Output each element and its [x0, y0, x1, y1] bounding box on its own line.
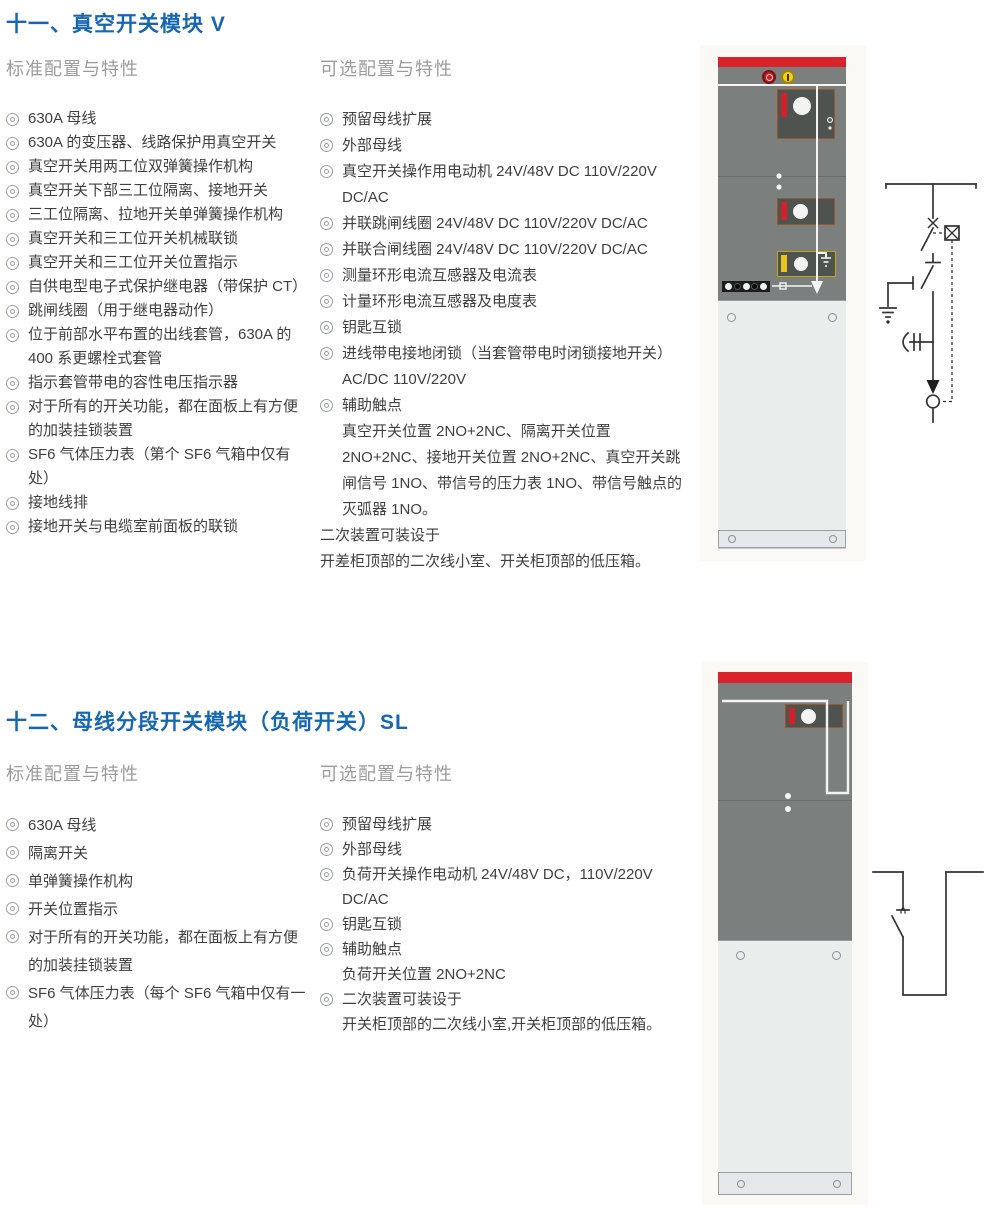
bullet-icon	[6, 209, 19, 222]
bullet-icon	[6, 930, 19, 943]
optional-config-list: 预留母线扩展 外部母线 真空开关操作用电动机 24V/48V DC 110V/2…	[320, 107, 694, 523]
item-text: 预留母线扩展	[342, 107, 694, 133]
item-text: 负荷开关操作电动机 24V/48V DC，110V/220V DC/AC	[342, 862, 698, 912]
bullet-icon	[320, 943, 333, 956]
section-link-line	[903, 872, 946, 995]
item-text: 真空开关和三工位开关机械联锁	[28, 227, 308, 251]
item-text: 630A 母线	[28, 107, 308, 131]
bullet-icon	[320, 139, 333, 152]
page: 十一、真空开关模块 V 标准配置与特性 630A 母线 630A 的变压器、线路…	[0, 0, 996, 1208]
config-item: 接地线排	[6, 491, 308, 515]
mimic-diagram-lines	[718, 57, 846, 549]
bullet-icon	[320, 243, 333, 256]
bullet-icon	[6, 846, 19, 859]
config-item: 630A 母线	[6, 107, 308, 131]
bullet-icon	[320, 843, 333, 856]
protection-relay-box	[945, 226, 959, 240]
standard-heading: 标准配置与特性	[6, 55, 308, 81]
bullet-icon	[320, 113, 333, 126]
item-text: 真空开关和三工位开关位置指示	[28, 251, 308, 275]
item-text: 跳闸线圈（用于继电器动作）	[28, 299, 308, 323]
item-subtext: 负荷开关位置 2NO+2NC	[342, 962, 698, 987]
ct-sensor-circle	[927, 395, 940, 408]
item-text: 隔离开关	[28, 840, 308, 868]
bullet-icon	[320, 295, 333, 308]
config-item: 辅助触点 负荷开关位置 2NO+2NC	[320, 937, 698, 987]
item-text: 辅助触点	[342, 397, 402, 414]
item-text: 并联跳闸线圈 24V/48V DC 110V/220V DC/AC	[342, 211, 694, 237]
item-text: 真空开关下部三工位隔离、接地开关	[28, 179, 308, 203]
config-item: 钥匙互锁	[320, 315, 694, 341]
indicator-arc	[903, 333, 908, 351]
config-item: 开关位置指示	[6, 896, 308, 924]
footer-line: 二次装置可装设于	[320, 523, 694, 549]
config-item: 630A 的变压器、线路保护用真空开关	[6, 131, 308, 155]
config-item: 真空开关下部三工位隔离、接地开关	[6, 179, 308, 203]
section-12-title: 十二、母线分段开关模块（负荷开关）SL	[6, 706, 409, 736]
item-text: SF6 气体压力表（每个 SF6 气箱中仅有一处）	[28, 980, 308, 1036]
bullet-icon	[320, 918, 333, 931]
bullet-icon	[6, 902, 19, 915]
item-text: 真空开关用两工位双弹簧操作机构	[28, 155, 308, 179]
item-text: 钥匙互锁	[342, 912, 698, 937]
item-text: SF6 气体压力表（第个 SF6 气箱中仅有处）	[28, 443, 308, 491]
config-item: 隔离开关	[6, 840, 308, 868]
breaker-x-mark	[929, 219, 938, 228]
item-text: 单弹簧操作机构	[28, 868, 308, 896]
bullet-icon	[320, 868, 333, 881]
config-item: 三工位隔离、拉地开关单弹簧操作机构	[6, 203, 308, 227]
item-text: 二次装置可装设于	[342, 991, 462, 1008]
disconnector-blade	[922, 228, 934, 250]
footer-line: 开差柜顶部的二次线小室、开关柜顶部的低压箱。	[320, 549, 694, 575]
optional-config-list: 预留母线扩展 外部母线 负荷开关操作电动机 24V/48V DC，110V/22…	[320, 812, 698, 1037]
bullet-icon	[6, 874, 19, 887]
cabinet-photo-v	[718, 57, 846, 549]
item-text-wrap: 二次装置可装设于 开关柜顶部的二次线小室,开关柜顶部的低压箱。	[342, 987, 698, 1037]
bullet-icon	[6, 329, 19, 342]
config-item: 二次装置可装设于 开关柜顶部的二次线小室,开关柜顶部的低压箱。	[320, 987, 698, 1037]
item-subtext: 开关柜顶部的二次线小室,开关柜顶部的低压箱。	[342, 1012, 698, 1037]
circuit-diagram-v	[868, 170, 990, 432]
item-text: 进线带电接地闭锁（当套管带电时闭锁接地开关）AC/DC 110V/220V	[342, 341, 694, 393]
config-item: 跳闸线圈（用于继电器动作）	[6, 299, 308, 323]
bullet-icon	[320, 399, 333, 412]
config-item: 预留母线扩展	[320, 812, 698, 837]
config-item: 630A 母线	[6, 812, 308, 840]
bullet-icon	[6, 161, 19, 174]
bullet-icon	[320, 321, 333, 334]
bullet-icon	[6, 113, 19, 126]
config-item: 辅助触点 真空开关位置 2NO+2NC、隔离开关位置 2NO+2NC、接地开关位…	[320, 393, 694, 523]
item-text: 接地开关与电缆室前面板的联锁	[28, 515, 308, 539]
config-item: 预留母线扩展	[320, 107, 694, 133]
optional-heading: 可选配置与特性	[320, 760, 698, 786]
bullet-icon	[6, 818, 19, 831]
bullet-icon	[6, 305, 19, 318]
relay-dashed-links	[933, 233, 952, 402]
config-item: 接地开关与电缆室前面板的联锁	[6, 515, 308, 539]
bullet-icon	[320, 347, 333, 360]
bullet-icon	[6, 986, 19, 999]
item-text-wrap: 辅助触点 真空开关位置 2NO+2NC、隔离开关位置 2NO+2NC、接地开关位…	[342, 393, 694, 523]
config-item: 自供电型电子式保护继电器（带保护 CT）	[6, 275, 308, 299]
config-item: 真空开关操作用电动机 24V/48V DC 110V/220V DC/AC	[320, 159, 694, 211]
config-item: 外部母线	[320, 837, 698, 862]
config-item: SF6 气体压力表（第个 SF6 气箱中仅有处）	[6, 443, 308, 491]
bullet-icon	[6, 281, 19, 294]
item-text: 真空开关操作用电动机 24V/48V DC 110V/220V DC/AC	[342, 159, 694, 211]
item-text: 预留母线扩展	[342, 812, 698, 837]
section-11-optional-column: 可选配置与特性 预留母线扩展 外部母线 真空开关操作用电动机 24V/48V D…	[320, 55, 694, 575]
bullet-icon	[6, 377, 19, 390]
item-text: 外部母线	[342, 133, 694, 159]
item-text-wrap: 辅助触点 负荷开关位置 2NO+2NC	[342, 937, 698, 987]
item-text: 指示套管带电的容性电压指示器	[28, 371, 308, 395]
item-text: 对于所有的开关功能，都在面板上有方便的加装挂锁装置	[28, 924, 308, 980]
bullet-icon	[6, 233, 19, 246]
config-item: 负荷开关操作电动机 24V/48V DC，110V/220V DC/AC	[320, 862, 698, 912]
config-item: 测量环形电流互感器及电流表	[320, 263, 694, 289]
config-item: 单弹簧操作机构	[6, 868, 308, 896]
bullet-icon	[6, 185, 19, 198]
circuit-diagram-sl	[862, 865, 987, 1005]
config-item: 外部母线	[320, 133, 694, 159]
item-text: 计量环形电流互感器及电度表	[342, 289, 694, 315]
bullet-icon	[320, 217, 333, 230]
load-switch-blade	[892, 916, 903, 937]
config-item: 钥匙互锁	[320, 912, 698, 937]
config-item: 并联合闸线圈 24V/48V DC 110V/220V DC/AC	[320, 237, 694, 263]
standard-config-list: 630A 母线 隔离开关 单弹簧操作机构 开关位置指示 对于所有的开关功能，都在…	[6, 812, 308, 1036]
bullet-icon	[6, 497, 19, 510]
bullet-icon	[320, 165, 333, 178]
config-item: 计量环形电流互感器及电度表	[320, 289, 694, 315]
item-text: 自供电型电子式保护继电器（带保护 CT）	[28, 275, 308, 299]
config-item: 对于所有的开关功能，都在面板上有方便的加装挂锁装置	[6, 395, 308, 443]
item-text: 开关位置指示	[28, 896, 308, 924]
item-text: 并联合闸线圈 24V/48V DC 110V/220V DC/AC	[342, 237, 694, 263]
item-text: 外部母线	[342, 837, 698, 862]
switch-blade	[922, 266, 934, 288]
mimic-diagram-lines	[718, 672, 852, 1195]
item-text: 位于前部水平布置的出线套管，630A 的 400 系更螺栓式套管	[28, 323, 308, 371]
section-11-standard-column: 标准配置与特性 630A 母线 630A 的变压器、线路保护用真空开关 真空开关…	[6, 55, 308, 539]
config-item: 指示套管带电的容性电压指示器	[6, 371, 308, 395]
section-12-standard-column: 标准配置与特性 630A 母线 隔离开关 单弹簧操作机构 开关位置指示 对于所有…	[6, 760, 308, 1036]
item-text: 630A 母线	[28, 812, 308, 840]
bullet-icon	[6, 137, 19, 150]
bullet-icon	[320, 993, 333, 1006]
item-subtext: 真空开关位置 2NO+2NC、隔离开关位置 2NO+2NC、接地开关位置 2NO…	[342, 419, 694, 523]
item-text: 测量环形电流互感器及电流表	[342, 263, 694, 289]
config-item: 真空开关用两工位双弹簧操作机构	[6, 155, 308, 179]
config-item: SF6 气体压力表（每个 SF6 气箱中仅有一处）	[6, 980, 308, 1036]
config-item: 进线带电接地闭锁（当套管带电时闭锁接地开关）AC/DC 110V/220V	[320, 341, 694, 393]
item-text: 接地线排	[28, 491, 308, 515]
item-text: 钥匙互锁	[342, 315, 694, 341]
bullet-icon	[320, 818, 333, 831]
item-text: 辅助触点	[342, 941, 402, 958]
item-text: 三工位隔离、拉地开关单弹簧操作机构	[28, 203, 308, 227]
bullet-icon	[320, 269, 333, 282]
bullet-icon	[6, 401, 19, 414]
section-12-optional-column: 可选配置与特性 预留母线扩展 外部母线 负荷开关操作电动机 24V/48V DC…	[320, 760, 698, 1037]
optional-heading: 可选配置与特性	[320, 55, 694, 81]
cable-arrow	[927, 380, 940, 394]
section-11-title: 十一、真空开关模块 V	[6, 8, 226, 38]
item-text: 630A 的变压器、线路保护用真空开关	[28, 131, 308, 155]
config-item: 真空开关和三工位开关机械联锁	[6, 227, 308, 251]
cabinet-photo-sl	[718, 672, 852, 1195]
standard-config-list: 630A 母线 630A 的变压器、线路保护用真空开关 真空开关用两工位双弹簧操…	[6, 107, 308, 539]
standard-heading: 标准配置与特性	[6, 760, 308, 786]
bullet-icon	[6, 449, 19, 462]
config-item: 对于所有的开关功能，都在面板上有方便的加装挂锁装置	[6, 924, 308, 980]
bullet-icon	[6, 521, 19, 534]
bullet-icon	[6, 257, 19, 270]
config-item: 并联跳闸线圈 24V/48V DC 110V/220V DC/AC	[320, 211, 694, 237]
config-item: 真空开关和三工位开关位置指示	[6, 251, 308, 275]
config-item: 位于前部水平布置的出线套管，630A 的 400 系更螺栓式套管	[6, 323, 308, 371]
item-text: 对于所有的开关功能，都在面板上有方便的加装挂锁装置	[28, 395, 308, 443]
